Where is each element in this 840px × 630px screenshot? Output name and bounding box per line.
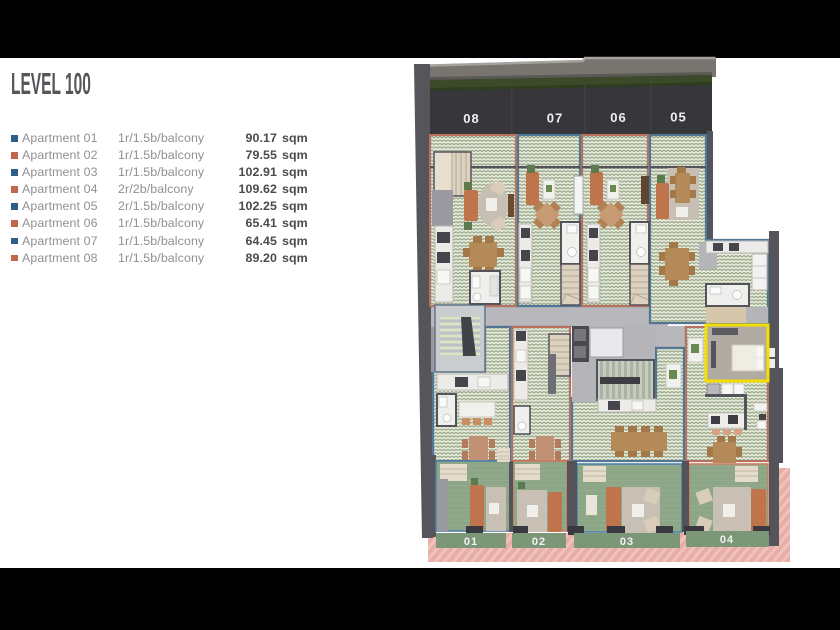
svg-text:02: 02 — [532, 536, 546, 548]
svg-text:08: 08 — [463, 111, 479, 126]
svg-text:05: 05 — [670, 110, 686, 125]
svg-text:07: 07 — [547, 111, 563, 126]
svg-text:06: 06 — [610, 110, 626, 125]
svg-text:03: 03 — [620, 536, 634, 548]
svg-text:04: 04 — [720, 534, 734, 546]
svg-text:01: 01 — [464, 536, 478, 548]
